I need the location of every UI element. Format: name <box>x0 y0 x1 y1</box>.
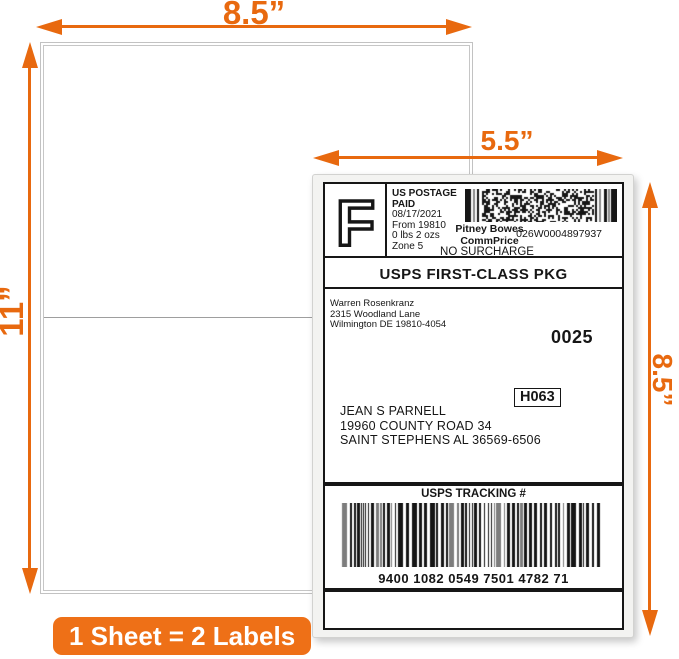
sheet-equals-labels-badge: 1 Sheet = 2 Labels <box>53 617 311 655</box>
sheet-width-arrow <box>62 25 446 28</box>
label-height-arrow <box>648 208 651 610</box>
recipient-address: JEAN S PARNELL 19960 COUNTY ROAD 34 SAIN… <box>340 404 541 448</box>
service-class-title: USPS FIRST-CLASS PKG <box>325 260 622 289</box>
tracking-separator-bottom <box>325 588 622 592</box>
postage-header: F US POSTAGE PAID 08/17/2021 From 19810 … <box>325 184 622 258</box>
label-sheet-diagram: 8.5” 11” F US POSTAGE PAID 08/17/2021 Fr… <box>0 0 679 659</box>
form-number: 0025 <box>551 327 593 348</box>
label-width-dimension: 5.5” <box>447 126 567 156</box>
recipient-line: 19960 COUNTY ROAD 34 <box>340 419 541 434</box>
sheet-height-dimension: 11” <box>0 281 31 341</box>
shipping-label: F US POSTAGE PAID 08/17/2021 From 19810 … <box>312 174 634 638</box>
tracking-separator-top <box>325 482 622 486</box>
surcharge-note: NO SURCHARGE <box>407 246 567 258</box>
postage-line: US POSTAGE <box>392 189 457 200</box>
meter-2d-barcode <box>465 189 617 222</box>
sender-line: Wilmington DE 19810-4054 <box>330 320 446 331</box>
first-class-f-icon: F <box>334 190 376 250</box>
postage-details-cell: US POSTAGE PAID 08/17/2021 From 19810 0 … <box>387 184 622 256</box>
label-width-arrow <box>339 156 597 159</box>
recipient-line: SAINT STEPHENS AL 36569-6506 <box>340 433 541 448</box>
address-section: Warren Rosenkranz 2315 Woodland Lane Wil… <box>325 291 622 482</box>
sheet-height-arrow <box>28 68 31 568</box>
tracking-title: USPS TRACKING # <box>325 488 622 500</box>
sender-line: Warren Rosenkranz <box>330 299 446 310</box>
tracking-barcode <box>341 503 605 567</box>
postage-detail: 08/17/2021 <box>392 210 457 221</box>
svg-text:F: F <box>336 190 375 250</box>
meter-id: 026W0004897937 <box>516 228 602 240</box>
tracking-number: 9400 1082 0549 7501 4782 71 <box>325 571 622 586</box>
shipping-label-inner: F US POSTAGE PAID 08/17/2021 From 19810 … <box>323 182 624 630</box>
recipient-line: JEAN S PARNELL <box>340 404 541 419</box>
sender-address: Warren Rosenkranz 2315 Woodland Lane Wil… <box>330 299 446 331</box>
postage-class-cell: F <box>325 184 387 256</box>
